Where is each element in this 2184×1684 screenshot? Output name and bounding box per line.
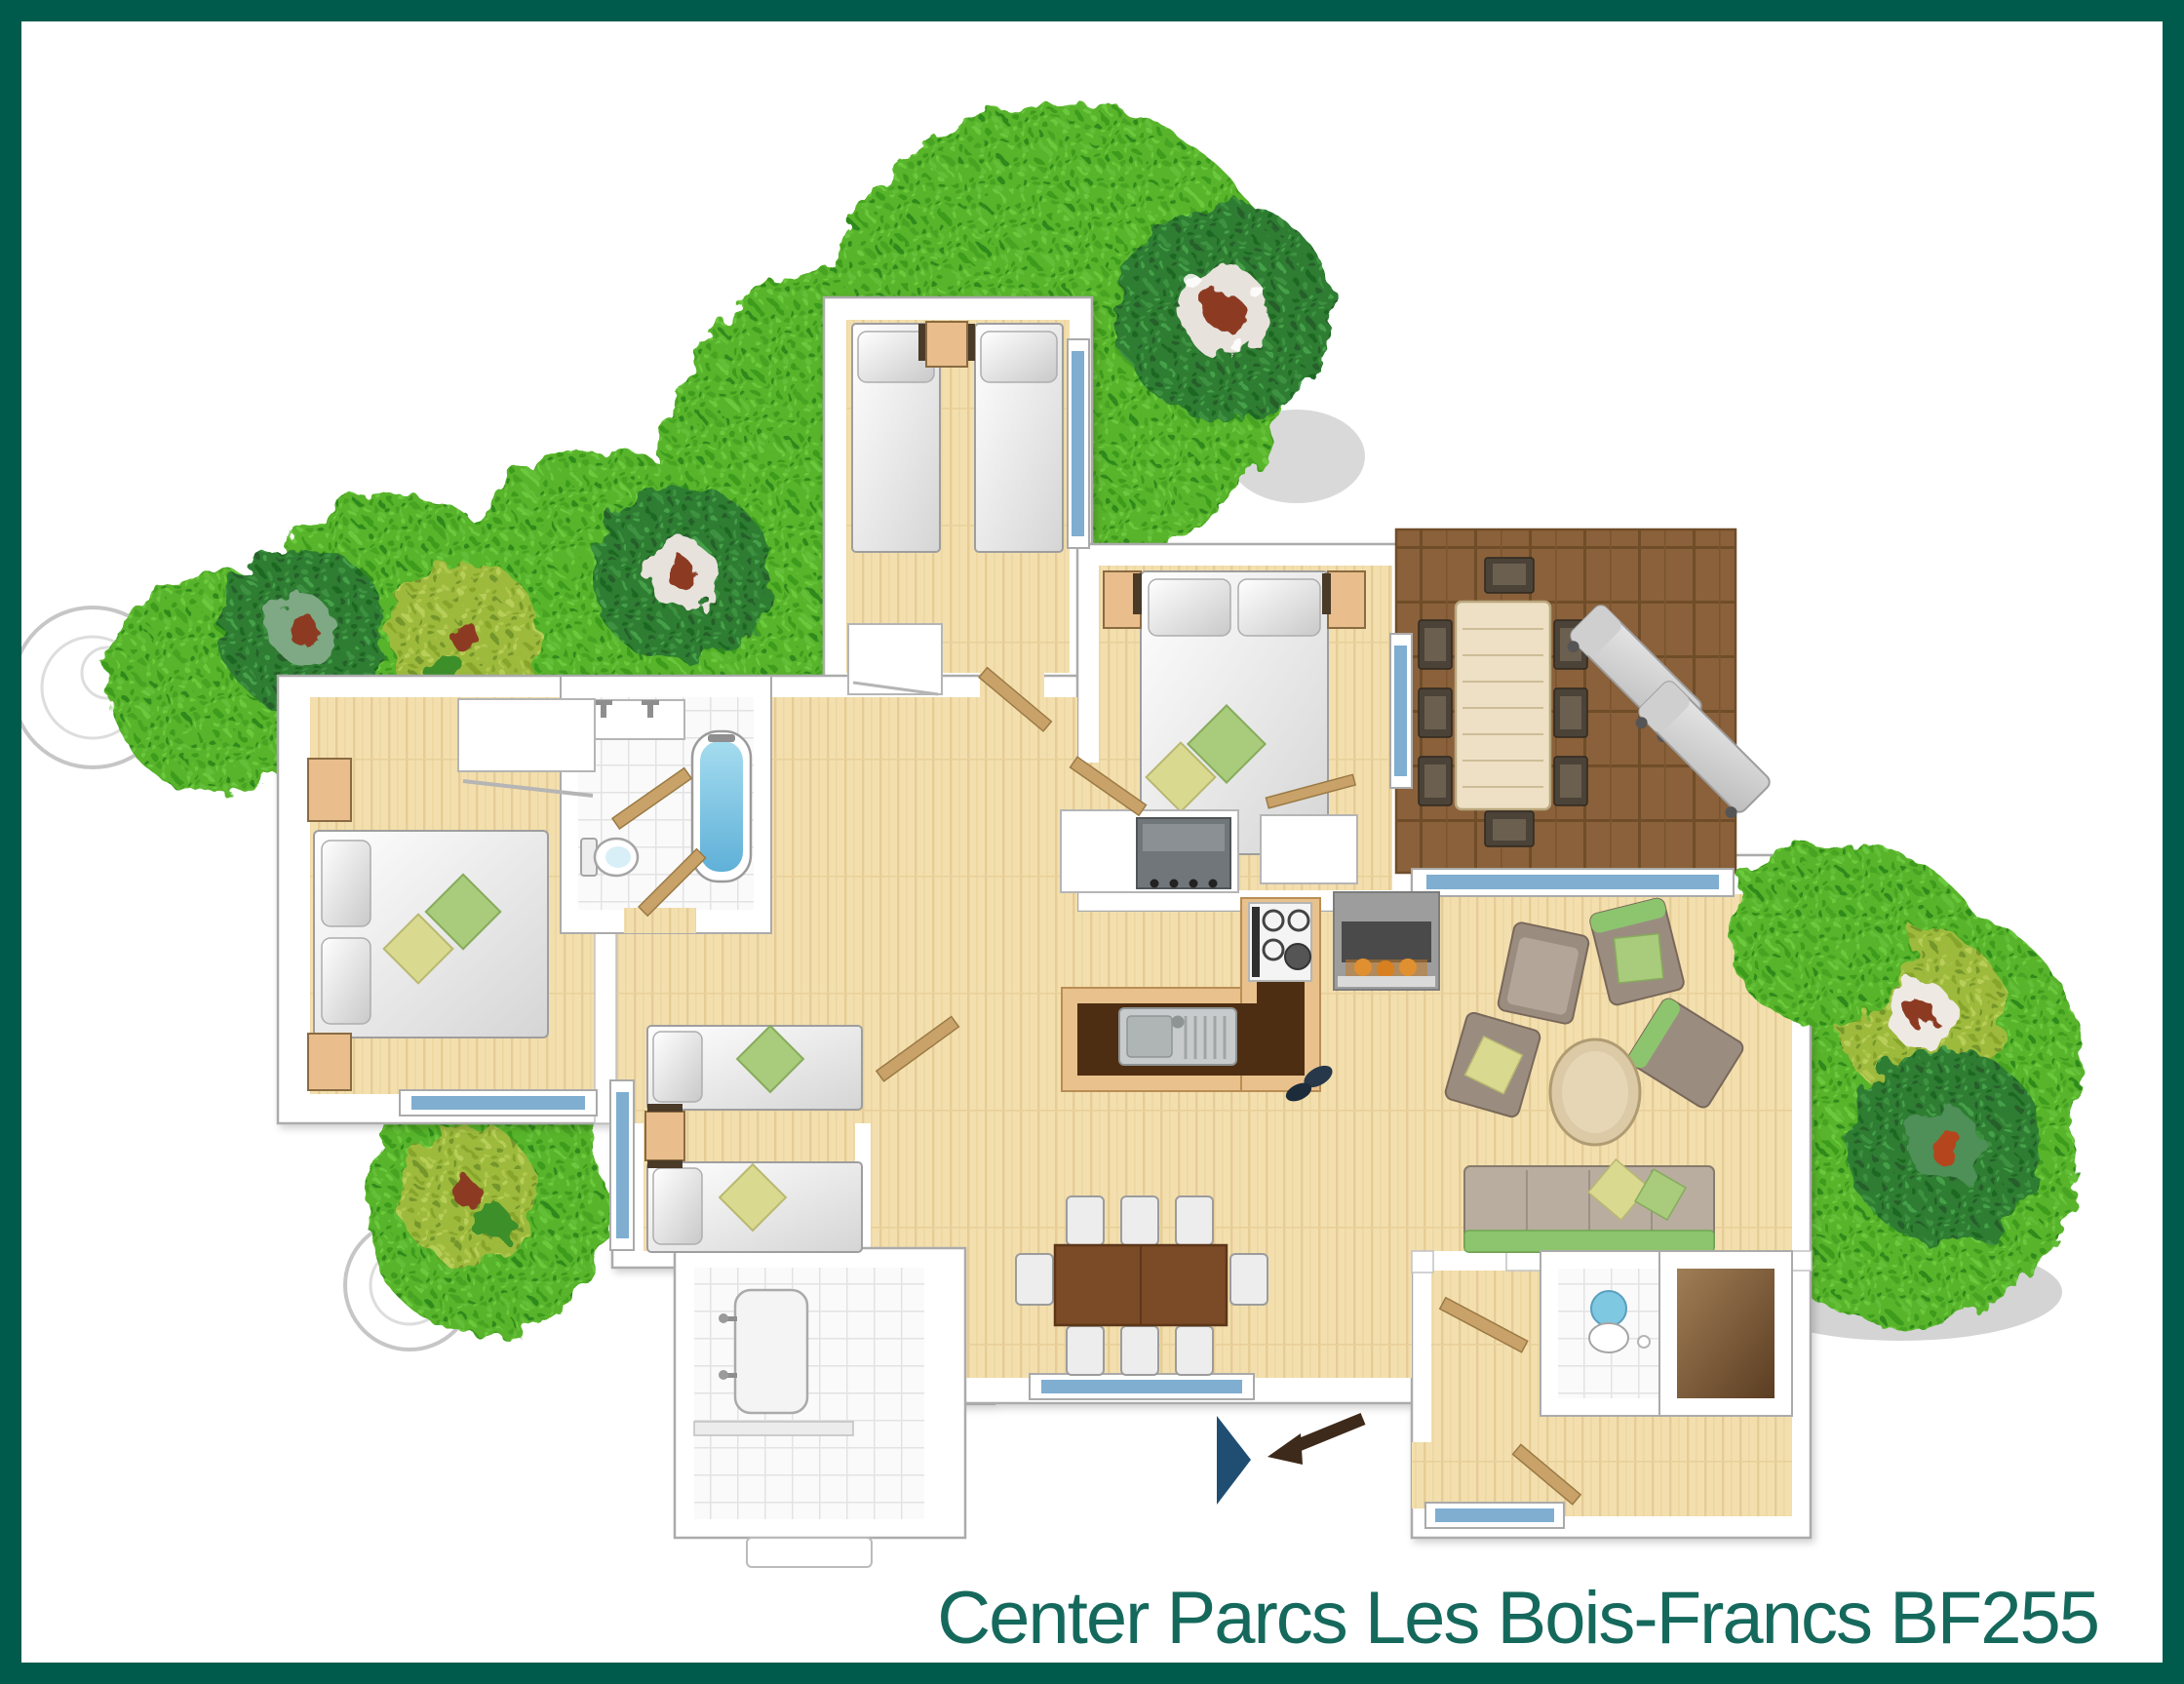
plan-title: Center Parcs Les Bois-Francs BF255 xyxy=(937,1576,2098,1661)
sofa xyxy=(1464,1159,1714,1252)
entrance-arrow-icon xyxy=(1267,1433,1303,1465)
window-hall xyxy=(1425,1503,1564,1528)
toilet xyxy=(581,839,638,876)
window-dining xyxy=(1030,1374,1254,1399)
utility-step xyxy=(747,1538,872,1567)
window-master-bedroom xyxy=(400,1090,597,1116)
coffee-table xyxy=(1550,1039,1640,1145)
tree-dark-top-right xyxy=(1115,203,1334,421)
tree-dark-left2 xyxy=(593,486,772,665)
entrance-marker xyxy=(1217,1416,1363,1505)
kitchen-sink xyxy=(1119,1008,1236,1065)
window-bedroom3 xyxy=(610,1080,634,1250)
utility-room xyxy=(675,1248,965,1567)
window-twin-bedroom xyxy=(1068,339,1089,548)
closet xyxy=(1659,1251,1792,1416)
twin-nightstand xyxy=(926,322,967,367)
master-wardrobe xyxy=(458,699,595,771)
tree-dark-right xyxy=(1848,1048,2043,1243)
wc-toilet-lid xyxy=(1591,1291,1626,1326)
bathroom-sink-counter xyxy=(583,700,684,739)
deck-dining-table xyxy=(1456,602,1550,809)
wc-room xyxy=(1540,1251,1677,1416)
kitchen-appliance xyxy=(1137,818,1230,888)
tree-yellow-bottom-left xyxy=(398,1124,538,1265)
window-deck-living xyxy=(1412,869,1734,896)
floor-plan-page: Center Parcs Les Bois-Francs BF255 xyxy=(0,0,2184,1684)
kitchen-hob xyxy=(1249,903,1311,981)
window-bedroom2 xyxy=(1390,634,1412,788)
floor-plan-graphic xyxy=(0,0,2184,1684)
kitchen-cabinet xyxy=(1261,815,1357,883)
entrance-triangle-icon xyxy=(1217,1416,1251,1505)
hedge-deck-corner xyxy=(1729,842,1914,1027)
fireplace xyxy=(1334,892,1439,990)
deck xyxy=(1396,529,1773,873)
